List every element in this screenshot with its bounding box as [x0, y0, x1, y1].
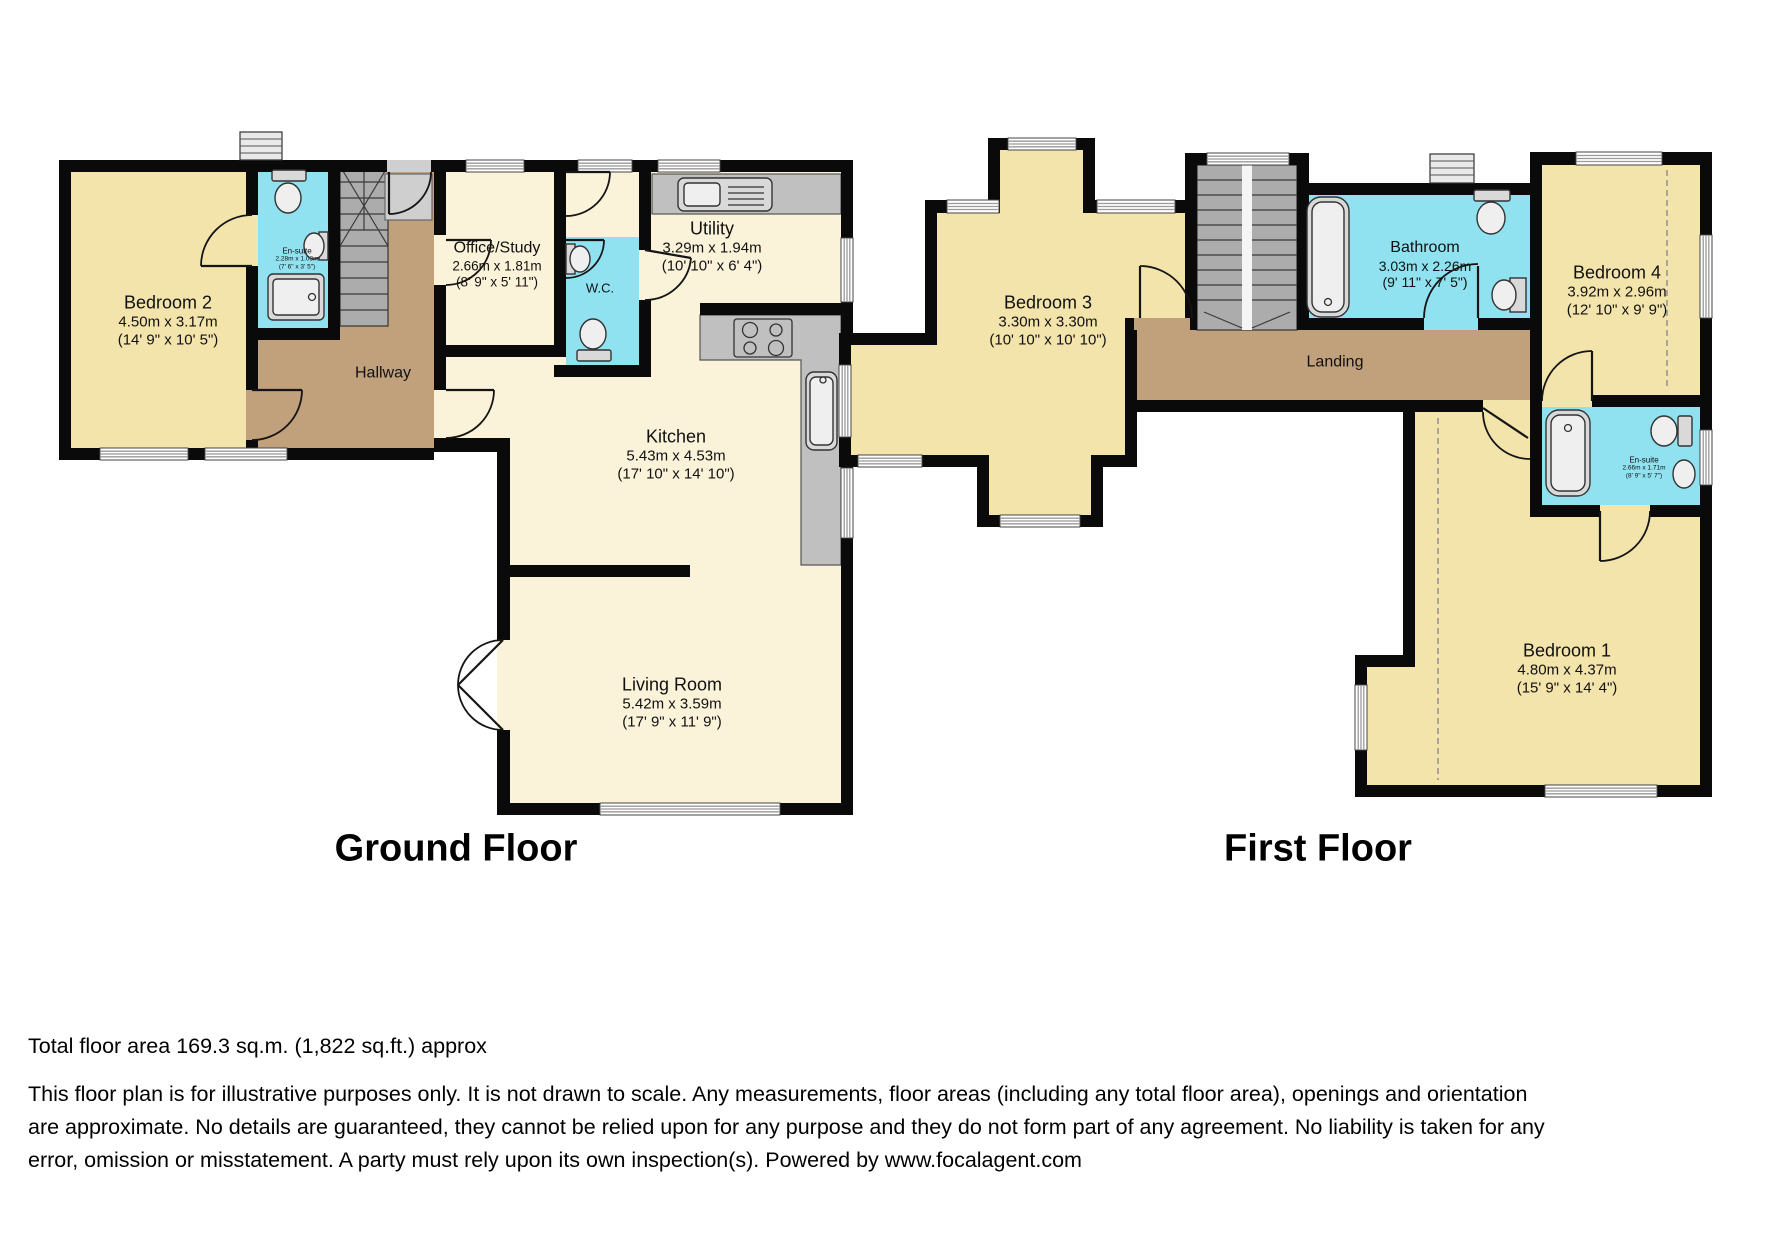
ensuite-first-door-gap — [1600, 505, 1650, 517]
bedroom3-wing-side-window — [839, 365, 851, 437]
room-name: Landing — [1307, 354, 1364, 373]
exterior-patch — [1137, 412, 1199, 470]
toilet-cistern — [577, 350, 611, 361]
room-name: Hallway — [355, 365, 411, 384]
utility-sink — [678, 178, 772, 211]
room-name: Bedroom 2 — [118, 293, 219, 314]
wing-opening — [922, 345, 940, 455]
room-label-bedroom-3: Bedroom 3 3.30m x 3.30m (10' 10" x 10' 1… — [989, 293, 1106, 350]
room-label-bedroom-1: Bedroom 1 4.80m x 4.37m (15' 9" x 14' 4"… — [1517, 641, 1618, 698]
disclaimer-text: This floor plan is for illustrative purp… — [28, 1078, 1558, 1177]
stairs-window — [1207, 153, 1289, 165]
bedroom1-side-window — [1355, 685, 1367, 750]
room-dims-imperial: (7' 6" x 3' 5") — [276, 264, 319, 272]
utility-door-gap — [639, 250, 651, 300]
front-door-gap — [387, 160, 431, 172]
ensuite-ground-door-gap — [246, 215, 258, 266]
room-dims-imperial: (10' 10" x 10' 10") — [989, 332, 1106, 350]
room-dims-metric: 4.80m x 4.37m — [1517, 662, 1618, 680]
room-label-bathroom: Bathroom 3.03m x 2.26m (9' 11" x 7' 5") — [1379, 239, 1472, 291]
room-dims-metric: 2.28m x 1.03m — [276, 256, 319, 264]
bedroom3-bay-bottom-window — [1000, 515, 1080, 527]
bedroom3-wing-bottom-window — [858, 455, 922, 467]
bedroom1-door-gap — [1483, 400, 1530, 412]
room-label-ensuite-ground: En-suite 2.28m x 1.03m (7' 6" x 3' 5") — [276, 247, 319, 272]
hall-recess-window — [578, 160, 632, 172]
room-name: Bedroom 4 — [1567, 263, 1668, 284]
room-dims-imperial: (15' 9" x 14' 4") — [1517, 680, 1618, 698]
room-name: En-suite — [1623, 456, 1666, 465]
bathroom-vent — [1430, 154, 1474, 183]
bedroom2-window-2 — [205, 448, 287, 460]
total-floor-area: Total floor area 169.3 sq.m. (1,822 sq.f… — [28, 1034, 487, 1059]
room-dims-imperial: (17' 9" x 11' 9") — [622, 714, 722, 732]
room-label-kitchen: Kitchen 5.43m x 4.53m (17' 10" x 14' 10"… — [617, 427, 734, 484]
toilet-cistern — [1678, 416, 1692, 446]
room-dims-metric: 4.50m x 3.17m — [118, 314, 219, 332]
toilet-cistern — [272, 170, 306, 181]
utility-top-window — [658, 160, 720, 172]
office-door-gap — [434, 235, 446, 285]
toilet-icon — [275, 183, 301, 213]
ensuite-ground-vent — [240, 132, 282, 160]
living-room-window — [600, 803, 780, 815]
bedroom4-side-window — [1700, 235, 1712, 318]
ground-floor-title: Ground Floor — [335, 828, 578, 871]
bedroom4-door-gap — [1542, 395, 1592, 407]
room-name: Office/Study — [452, 240, 541, 259]
room-dims-imperial: (10' 10" x 6' 4") — [662, 258, 763, 276]
room-name: W.C. — [586, 280, 614, 295]
sink-bowl — [684, 183, 720, 206]
bedroom2-door-gap — [246, 390, 258, 440]
room-name: Bedroom 1 — [1517, 641, 1618, 662]
room-name: Utility — [662, 219, 763, 240]
room-dims-metric: 3.03m x 2.26m — [1379, 258, 1472, 275]
room-name: Bedroom 3 — [989, 293, 1106, 314]
bedroom2-window-1 — [100, 448, 188, 460]
room-dims-metric: 3.29m x 1.94m — [662, 240, 763, 258]
room-dims-metric: 5.42m x 3.59m — [622, 696, 722, 714]
room-label-office-study: Office/Study 2.66m x 1.81m (8' 9" x 5' 1… — [452, 240, 541, 291]
room-label-landing: Landing — [1307, 354, 1364, 373]
room-label-living-room: Living Room 5.42m x 3.59m (17' 9" x 11' … — [622, 675, 722, 732]
bathroom-door-gap — [1424, 318, 1478, 330]
ground-stairs — [340, 166, 388, 326]
exterior-notch — [434, 452, 497, 571]
kitchen-side-window — [841, 468, 853, 538]
room-label-wc: W.C. — [586, 280, 614, 295]
sink-icon — [1673, 460, 1695, 488]
room-name: Bathroom — [1379, 239, 1472, 258]
bedroom1-bottom-window — [1545, 785, 1657, 797]
bay-top-opening — [1000, 200, 1083, 213]
first-floor-title: First Floor — [1224, 828, 1412, 871]
room-label-hallway: Hallway — [355, 365, 411, 384]
room-dims-imperial: (12' 10" x 9' 9") — [1567, 302, 1668, 320]
sink-icon — [570, 246, 590, 272]
toilet-cistern — [1474, 190, 1510, 201]
room-dims-metric: 2.66m x 1.71m — [1623, 465, 1666, 473]
room-dims-metric: 3.30m x 3.30m — [989, 314, 1106, 332]
bedroom4-top-window — [1576, 152, 1662, 165]
office-window — [466, 160, 524, 172]
first-floor-plan — [839, 138, 1712, 797]
room-name: Living Room — [622, 675, 722, 696]
floorplan-page: Bedroom 2 4.50m x 3.17m (14' 9" x 10' 5"… — [0, 0, 1771, 1239]
room-label-bedroom-2: Bedroom 2 4.50m x 3.17m (14' 9" x 10' 5"… — [118, 293, 219, 350]
bedroom3-door-gap — [1134, 318, 1190, 330]
room-dims-imperial: (8' 9" x 5' 11") — [452, 274, 541, 290]
room-dims-metric: 2.66m x 1.81m — [452, 259, 541, 275]
room-name: En-suite — [276, 247, 319, 256]
bedroom3-bay-window — [1008, 138, 1076, 150]
toilet-icon — [580, 319, 606, 349]
toilet-icon — [1477, 202, 1505, 234]
toilet-icon — [1651, 416, 1677, 446]
room-label-bedroom-4: Bedroom 4 3.92m x 2.96m (12' 10" x 9' 9"… — [1567, 263, 1668, 320]
room-dims-imperial: (14' 9" x 10' 5") — [118, 332, 219, 350]
room-label-ensuite-first: En-suite 2.66m x 1.71m (8' 9" x 5' 7") — [1623, 456, 1666, 481]
room-dims-imperial: (9' 11" x 7' 5") — [1379, 274, 1472, 291]
room-dims-imperial: (17' 10" x 14' 10") — [617, 466, 734, 484]
ensuite-first-side-window — [1700, 430, 1712, 485]
kitchen-door-gap — [434, 390, 446, 438]
bedroom3-top-window-1 — [947, 200, 999, 213]
bedroom3-top-window-2 — [1097, 200, 1175, 213]
kitchen-sink — [806, 372, 837, 450]
sink-icon — [1492, 280, 1516, 310]
room-name: Kitchen — [617, 427, 734, 448]
room-dims-metric: 3.92m x 2.96m — [1567, 284, 1668, 302]
room-dims-metric: 5.43m x 4.53m — [617, 448, 734, 466]
utility-side-window — [841, 238, 853, 302]
room-dims-imperial: (8' 9" x 5' 7") — [1623, 473, 1666, 481]
bay-bottom-opening — [989, 455, 1091, 467]
room-label-utility: Utility 3.29m x 1.94m (10' 10" x 6' 4") — [662, 219, 763, 276]
